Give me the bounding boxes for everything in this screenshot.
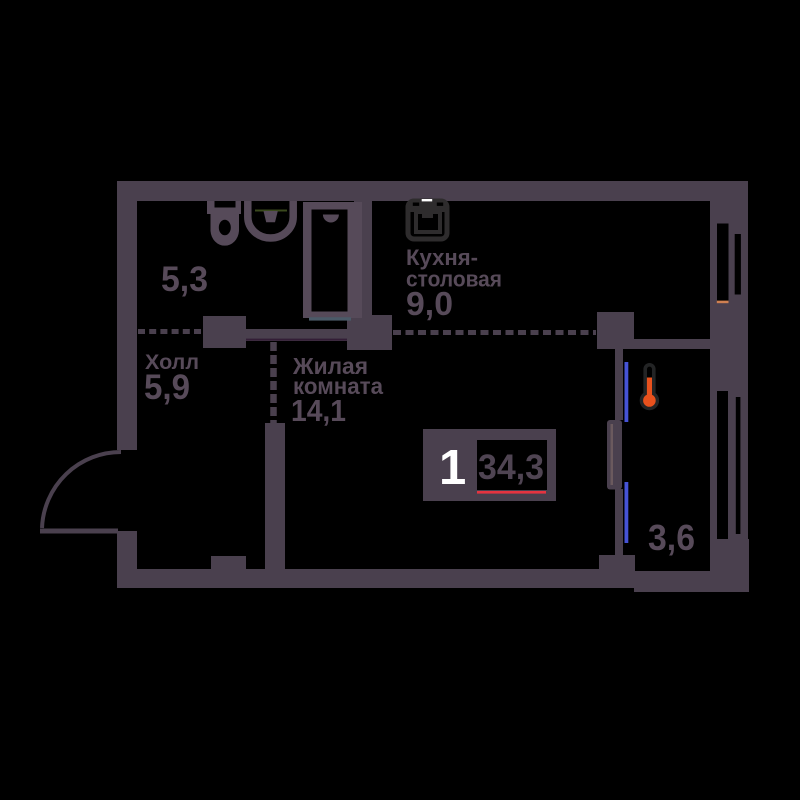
svg-text:5,9: 5,9 (144, 368, 190, 407)
svg-text:34,3: 34,3 (478, 448, 544, 487)
svg-text:5,3: 5,3 (161, 260, 208, 299)
svg-text:1: 1 (439, 441, 466, 495)
svg-text:9,0: 9,0 (406, 285, 453, 322)
svg-text:3,6: 3,6 (648, 517, 695, 558)
svg-text:14,1: 14,1 (291, 393, 346, 428)
